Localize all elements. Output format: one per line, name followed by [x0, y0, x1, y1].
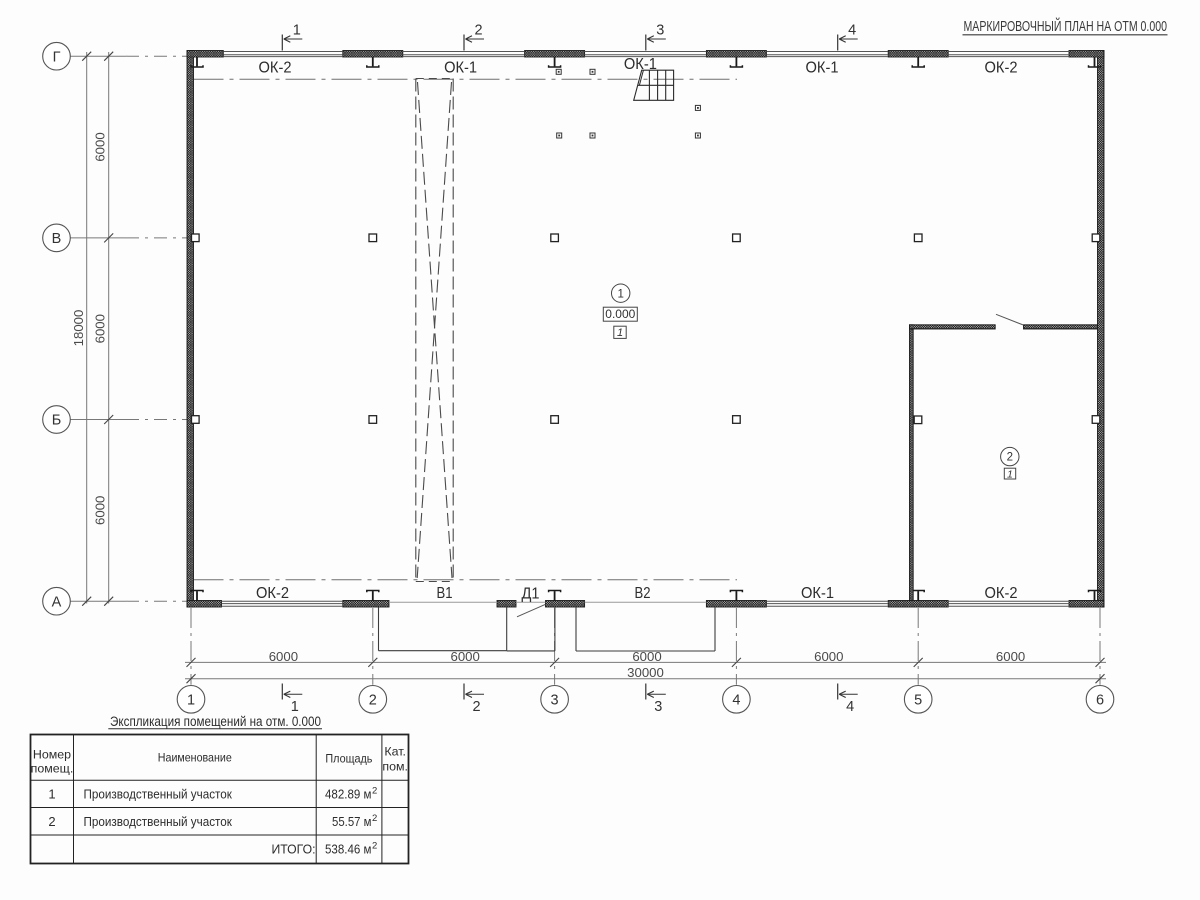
svg-text:2: 2 — [474, 22, 482, 38]
svg-text:538.46 м: 538.46 м — [325, 842, 372, 857]
svg-text:А: А — [52, 594, 62, 610]
svg-text:1: 1 — [617, 288, 623, 300]
svg-text:В2: В2 — [635, 585, 651, 602]
svg-text:3: 3 — [654, 699, 662, 715]
svg-text:6000: 6000 — [996, 649, 1025, 664]
svg-text:6000: 6000 — [92, 496, 107, 525]
svg-text:1: 1 — [1007, 468, 1013, 480]
svg-text:6000: 6000 — [92, 314, 107, 343]
svg-text:МАРКИРОВОЧНЫЙ ПЛАН НА ОТМ 0.00: МАРКИРОВОЧНЫЙ ПЛАН НА ОТМ 0.000 — [964, 17, 1168, 35]
svg-text:пом.: пом. — [382, 760, 408, 774]
svg-text:1: 1 — [291, 699, 299, 715]
svg-text:Площадь: Площадь — [325, 752, 372, 766]
svg-text:ОК-2: ОК-2 — [985, 60, 1018, 77]
svg-text:4: 4 — [846, 699, 854, 715]
svg-text:ОК-1: ОК-1 — [806, 60, 839, 77]
svg-text:2: 2 — [372, 841, 377, 852]
svg-text:0.000: 0.000 — [605, 307, 635, 321]
svg-text:Кат.: Кат. — [384, 745, 406, 759]
svg-text:6: 6 — [1096, 693, 1104, 709]
svg-text:1: 1 — [293, 22, 301, 38]
svg-text:5: 5 — [914, 693, 922, 709]
svg-text:2: 2 — [48, 814, 55, 829]
svg-text:В: В — [52, 231, 62, 247]
svg-text:ОК-1: ОК-1 — [444, 60, 477, 77]
svg-text:помещ.: помещ. — [31, 762, 74, 776]
svg-text:482.89 м: 482.89 м — [325, 787, 372, 802]
svg-text:3: 3 — [551, 693, 559, 709]
svg-text:2: 2 — [1007, 452, 1013, 464]
svg-text:ОК-1: ОК-1 — [624, 56, 657, 73]
svg-text:4: 4 — [848, 22, 856, 38]
svg-text:Наименование: Наименование — [158, 751, 232, 765]
svg-text:Экспликация помещений на отм.: Экспликация помещений на отм. 0.000 — [110, 714, 321, 729]
svg-text:ОК-1: ОК-1 — [801, 585, 834, 602]
svg-text:Г: Г — [53, 49, 61, 65]
svg-text:1: 1 — [187, 693, 195, 709]
svg-text:2: 2 — [369, 693, 377, 709]
svg-text:2: 2 — [372, 786, 377, 797]
svg-text:6000: 6000 — [269, 649, 298, 664]
svg-text:30000: 30000 — [627, 665, 664, 680]
svg-text:4: 4 — [732, 693, 740, 709]
svg-text:6000: 6000 — [92, 132, 107, 161]
svg-text:1: 1 — [617, 327, 623, 339]
svg-text:ИТОГО:: ИТОГО: — [272, 842, 316, 857]
svg-text:ОК-2: ОК-2 — [259, 60, 292, 77]
svg-text:Производственный участок: Производственный участок — [84, 814, 233, 829]
svg-text:6000: 6000 — [814, 649, 843, 664]
svg-text:2: 2 — [472, 699, 480, 715]
svg-text:3: 3 — [656, 22, 664, 38]
svg-text:55.57 м: 55.57 м — [332, 814, 372, 829]
svg-text:Производственный участок: Производственный участок — [84, 787, 233, 802]
svg-text:ОК-2: ОК-2 — [985, 585, 1018, 602]
svg-text:Номер: Номер — [33, 748, 71, 762]
svg-text:18000: 18000 — [71, 310, 86, 347]
svg-text:ОК-2: ОК-2 — [256, 585, 289, 602]
svg-text:Д1: Д1 — [522, 586, 540, 603]
svg-text:Б: Б — [52, 413, 62, 429]
svg-text:1: 1 — [48, 787, 55, 802]
svg-text:В1: В1 — [437, 585, 453, 602]
svg-text:2: 2 — [372, 813, 377, 824]
